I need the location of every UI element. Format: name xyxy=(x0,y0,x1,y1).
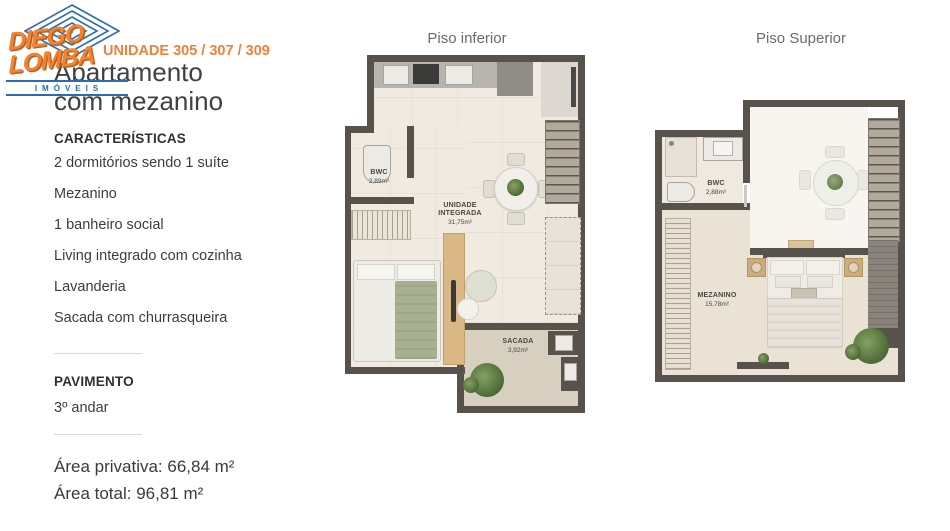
wall xyxy=(655,130,662,382)
feature-item: Mezanino xyxy=(54,179,294,210)
sink-basin xyxy=(713,141,733,156)
wall xyxy=(457,406,585,413)
room-label-bwc: BWC 2,89m² xyxy=(353,169,405,186)
private-area: Área privativa: 66,84 m² xyxy=(54,453,234,480)
upper-floor-plan: BWC 2,88m² MEZANINO 15,78m² xyxy=(655,100,908,392)
feature-item: Living integrado com cozinha xyxy=(54,241,294,272)
duvet xyxy=(767,298,843,348)
kitchen-sink xyxy=(383,65,409,85)
wall xyxy=(457,323,585,330)
table-plant-below xyxy=(827,174,843,190)
blanket xyxy=(395,281,437,359)
divider xyxy=(54,353,142,354)
shower-head xyxy=(669,141,674,146)
fridge xyxy=(497,62,533,96)
wall xyxy=(345,197,414,204)
floor-heading: PAVIMENTO xyxy=(54,374,134,389)
feature-item: Lavanderia xyxy=(54,272,294,303)
pillow xyxy=(806,260,840,275)
wall xyxy=(655,375,905,382)
total-area: Área total: 96,81 m² xyxy=(54,480,234,507)
lower-plan-title: Piso inferior xyxy=(387,30,547,47)
dining-chair-below xyxy=(825,146,845,158)
side-table xyxy=(457,298,479,320)
floor-value: 3º andar xyxy=(54,400,108,416)
wall xyxy=(345,126,351,374)
flyer-page: DIEGO LOMBA IMÓVEIS UNIDADE 305 / 307 / … xyxy=(0,0,950,531)
brand-name: DIEGO LOMBA xyxy=(8,21,95,78)
wall xyxy=(743,100,750,183)
wardrobe xyxy=(351,210,411,240)
room-label-sacada: SACADA 3,92m² xyxy=(488,338,548,355)
dining-chair-below xyxy=(799,170,811,190)
room-label-bwc-upper: BWC 2,88m² xyxy=(693,180,739,197)
door-leaf xyxy=(744,185,747,207)
area-summary: Área privativa: 66,84 m² Área total: 96,… xyxy=(54,453,234,507)
wall xyxy=(345,367,465,374)
lamp xyxy=(751,262,762,273)
pillow xyxy=(770,260,804,275)
divider xyxy=(54,434,142,435)
sofa xyxy=(545,217,581,315)
dining-chair xyxy=(507,212,525,225)
kitchen-sink xyxy=(445,65,473,85)
lamp xyxy=(848,262,859,273)
pillow xyxy=(357,264,395,280)
brand-subtitle: IMÓVEIS xyxy=(6,80,128,96)
wall xyxy=(367,55,585,62)
features-heading: CARACTERÍSTICAS xyxy=(54,131,186,146)
mezzanine-plant-leaf xyxy=(845,344,861,360)
wall xyxy=(655,130,750,137)
cooktop xyxy=(413,64,439,84)
feature-item: 1 banheiro social xyxy=(54,210,294,241)
dining-chair-below xyxy=(825,208,845,220)
brand-name-line2: LOMBA xyxy=(8,44,94,78)
tv xyxy=(451,280,456,322)
wall xyxy=(407,126,414,178)
room-label-mezanino: MEZANINO 15,78m² xyxy=(685,292,749,309)
grill-top xyxy=(555,335,573,351)
lower-floor-plan: BWC 2,89m² SACADA 3,92m² xyxy=(345,55,588,415)
railing-plant xyxy=(758,353,769,364)
feature-item: Sacada com churrasqueira xyxy=(54,303,294,334)
wall xyxy=(367,55,374,133)
cabinet-edge xyxy=(571,67,576,107)
feature-item: 2 dormitórios sendo 1 suíte xyxy=(54,148,294,179)
dining-chair xyxy=(507,153,525,166)
table-plant xyxy=(507,179,524,196)
balcony-sink xyxy=(564,363,577,381)
toilet xyxy=(667,182,695,202)
wall xyxy=(743,100,905,107)
pillow xyxy=(397,264,435,280)
staircase xyxy=(545,120,580,204)
pillow xyxy=(807,276,833,288)
upper-plan-title: Piso Superior xyxy=(721,30,881,47)
brand-logo: DIEGO LOMBA IMÓVEIS xyxy=(2,4,132,102)
features-list: 2 dormitórios sendo 1 suíte Mezanino 1 b… xyxy=(54,148,294,334)
pillow xyxy=(775,276,801,288)
wall xyxy=(655,203,750,210)
room-label-unidade-integrada: UNIDADE INTEGRADA 31,75m² xyxy=(434,202,486,227)
staircase xyxy=(868,118,900,242)
staircase-lower xyxy=(868,240,898,328)
balcony-plant-leaf xyxy=(463,377,479,393)
